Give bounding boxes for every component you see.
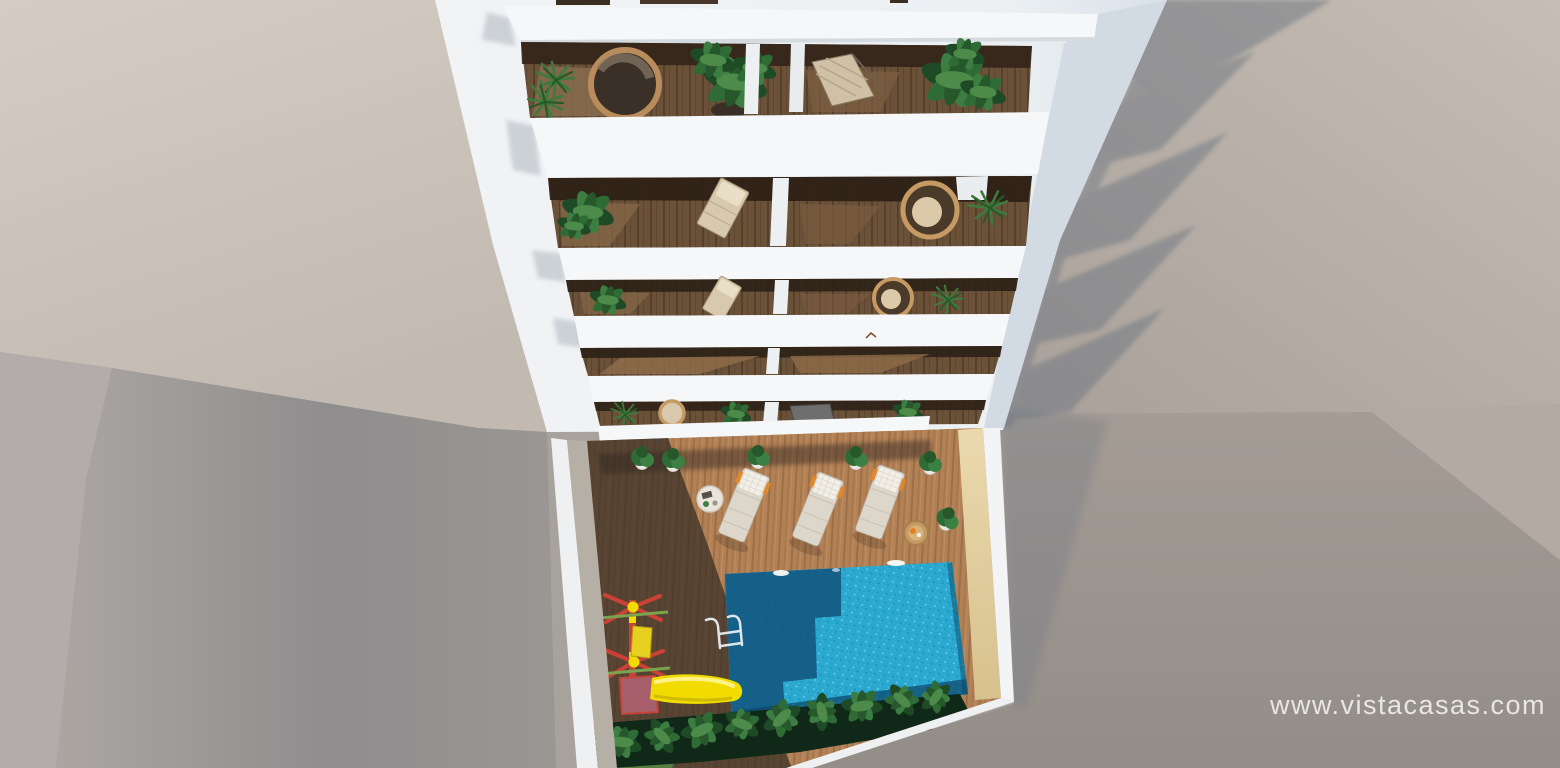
spinner-hub-top	[628, 602, 639, 613]
hanging-egg-chair	[874, 279, 912, 317]
balcony-row-4	[580, 346, 1002, 376]
render-scene: www.vistacasas.com	[0, 0, 1560, 768]
door-pillar	[789, 44, 805, 112]
balcony-row-2	[548, 176, 1032, 248]
property-render: www.vistacasas.com	[0, 0, 1560, 768]
balcony-divider	[766, 348, 780, 374]
spinner-hub-mid	[629, 657, 640, 668]
floor-slab	[558, 246, 1026, 280]
watermark-text: www.vistacasas.com	[1269, 690, 1546, 720]
floor-slab	[574, 314, 1010, 348]
hanging-egg-chair	[660, 401, 684, 425]
hanging-egg-chair	[903, 183, 957, 237]
balcony-row-3	[566, 276, 1018, 321]
balcony-divider	[770, 178, 789, 246]
pool-light-glint	[773, 570, 789, 576]
floor-slab	[530, 112, 1049, 178]
seat-box	[631, 626, 652, 658]
pool-light-glint	[832, 568, 840, 572]
pool-light-glint	[887, 560, 905, 566]
floor-slab	[588, 374, 994, 402]
glass-door-band	[566, 278, 1018, 292]
balcony-divider	[744, 44, 760, 114]
courtyard	[551, 428, 1014, 768]
balcony-divider	[773, 280, 789, 314]
side-table-rattan	[904, 521, 928, 545]
side-table-tray	[697, 486, 723, 512]
